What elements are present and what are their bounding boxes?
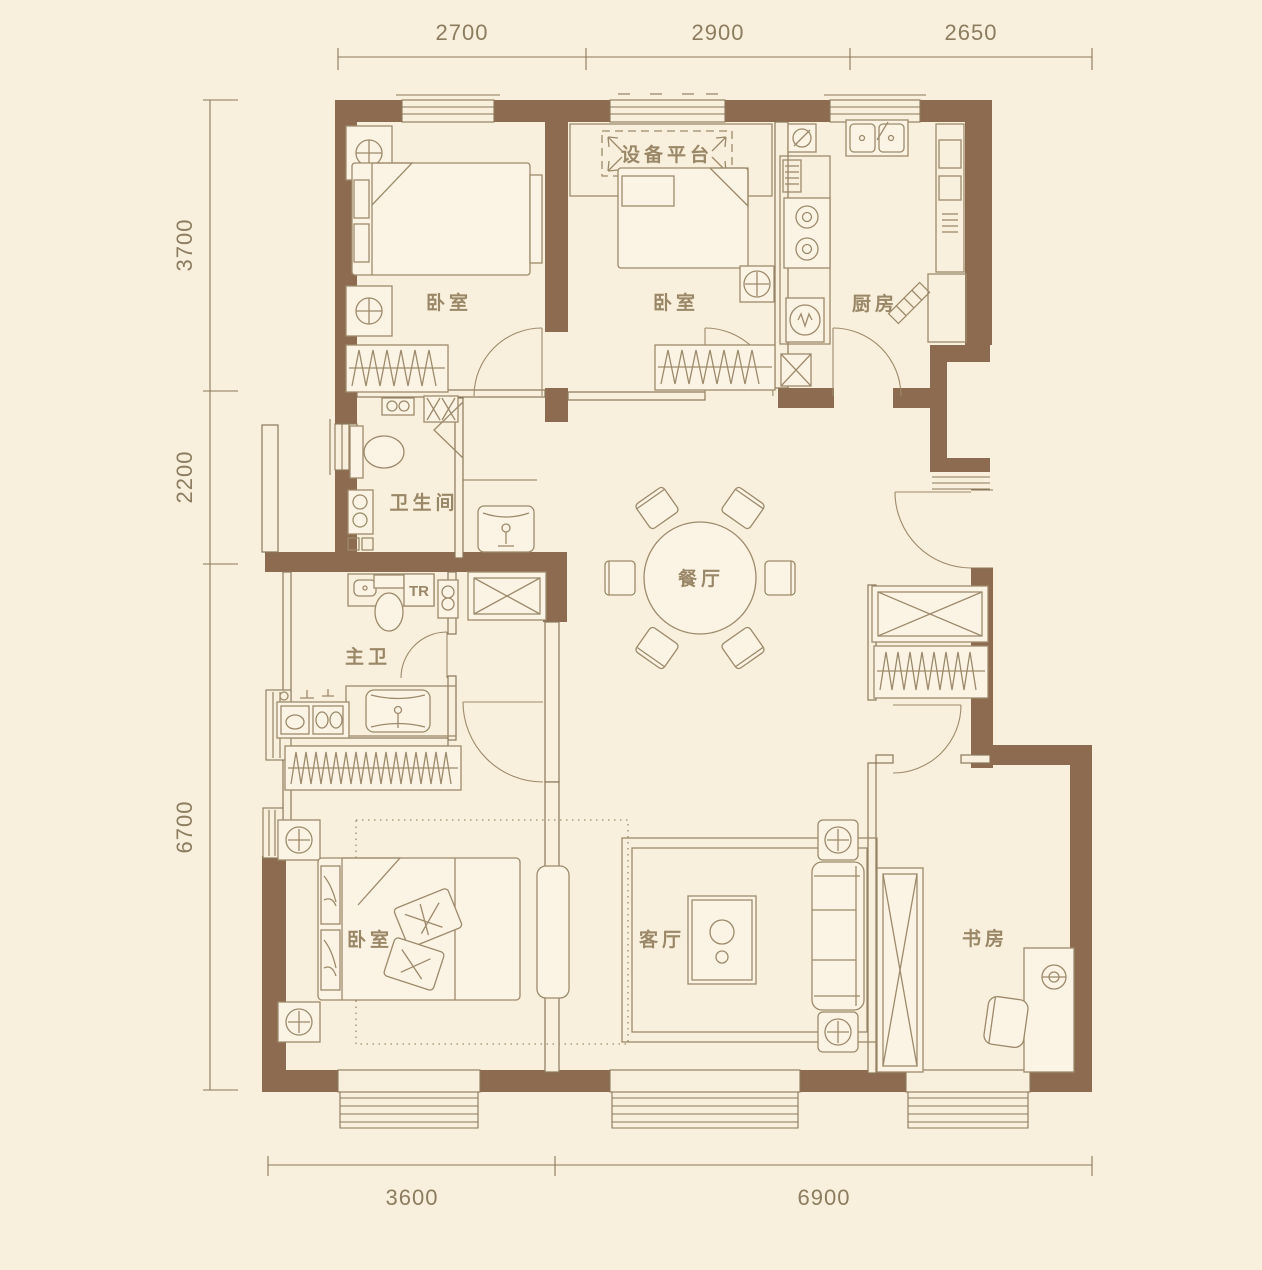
floor-plan-svg: 2700 2900 2650 3700 2200 6700 3600 6900 [0, 0, 1262, 1270]
shaft-icon [468, 572, 546, 620]
dining-chair-icon [634, 626, 679, 670]
window-kitchen-niche [932, 477, 990, 489]
shower-icon [348, 402, 463, 550]
washing-machine-icon [786, 298, 824, 342]
shelf-icon [382, 398, 414, 415]
corner-cabinet-icon [928, 274, 966, 342]
room-label-master-bath: 主卫 [345, 646, 391, 668]
dining-chair-icon [765, 561, 795, 595]
room-label-dining: 餐厅 [678, 567, 724, 590]
dining-chair-icon [634, 486, 679, 530]
door-kitchen [833, 328, 901, 396]
entry-furniture [872, 586, 988, 698]
washbasin-icon [463, 480, 537, 552]
bay-window-study-bottom [906, 1070, 1030, 1128]
door-entry [895, 492, 971, 568]
dim-left-2: 2200 [172, 451, 197, 504]
wardrobe-icon [346, 345, 448, 392]
dimension-bottom: 3600 6900 [268, 1156, 1092, 1210]
bedroom-2-furniture: 卧室 [618, 168, 775, 390]
label-tr: TR [409, 583, 429, 600]
window-kitchen-top [824, 95, 926, 122]
sofa-icon [812, 862, 864, 1010]
wardrobe-icon [285, 746, 461, 790]
bed-icon [352, 163, 542, 275]
door-study [893, 705, 961, 773]
door-master-bath [401, 632, 447, 678]
dining-furniture: 餐厅 [605, 486, 795, 670]
bay-window-bedroom3-bottom [338, 1070, 480, 1128]
window-bedroom1-top [396, 95, 500, 122]
desk-icon [1024, 948, 1074, 1072]
dim-left-3: 6700 [172, 801, 197, 854]
wardrobe-icon [874, 646, 988, 698]
shaft-icon [781, 354, 811, 386]
sink-icon [846, 120, 908, 156]
dining-chair-icon [720, 486, 765, 530]
bench-icon [537, 866, 569, 998]
counter-icon [936, 124, 964, 272]
room-label-bedroom-1: 卧室 [426, 291, 472, 314]
fridge-icon [788, 124, 816, 152]
bedroom-1-furniture: 卧室 [346, 126, 542, 392]
coffee-table-icon [688, 896, 756, 984]
wardrobe-icon [655, 345, 775, 390]
window-platform-top [610, 94, 725, 122]
side-table-icon [818, 820, 858, 860]
shaft-icon [872, 586, 988, 642]
room-label-bathroom: 卫生间 [389, 491, 458, 514]
bed-icon [618, 168, 748, 268]
dim-left-1: 3700 [172, 219, 197, 272]
dining-chair-icon [605, 561, 635, 595]
door-bedroom-1 [474, 328, 542, 396]
room-label-bedroom-3: 卧室 [347, 928, 393, 951]
master-bath-furniture: TR 主卫 [277, 572, 546, 738]
dimension-top: 2700 2900 2650 [338, 20, 1092, 70]
label-equipment-platform: 设备平台 [621, 143, 713, 166]
study-furniture: 书房 [877, 868, 1074, 1072]
double-sink-icon [277, 689, 349, 738]
bedroom-3-furniture: 卧室 [278, 746, 628, 1044]
bookcase-icon [877, 868, 923, 1072]
toilet-icon [350, 426, 404, 478]
room-label-bedroom-2: 卧室 [653, 291, 699, 314]
dim-top-1: 2700 [436, 20, 489, 45]
bed-icon [318, 858, 520, 1000]
dim-bottom-1: 3600 [386, 1185, 439, 1210]
side-table-icon [818, 1012, 858, 1052]
toilet-icon [374, 575, 404, 631]
room-label-study: 书房 [962, 927, 1008, 950]
dim-top-3: 2650 [945, 20, 998, 45]
living-furniture: 客厅 [622, 820, 877, 1052]
dim-top-2: 2900 [692, 20, 745, 45]
dim-bottom-2: 6900 [798, 1185, 851, 1210]
room-label-living: 客厅 [639, 928, 685, 951]
desk-chair-icon [983, 995, 1029, 1048]
dimension-left: 3700 2200 6700 [172, 100, 238, 1090]
vent-shaft-icon [424, 396, 458, 422]
bathroom-furniture: 卫生间 [348, 396, 537, 552]
vanity-icon [346, 686, 456, 736]
door-bedroom-3 [463, 702, 543, 782]
room-label-kitchen: 厨房 [852, 292, 898, 315]
stove-icon [784, 198, 830, 268]
bay-window-living-bottom [610, 1070, 800, 1128]
dining-chair-icon [720, 626, 765, 670]
